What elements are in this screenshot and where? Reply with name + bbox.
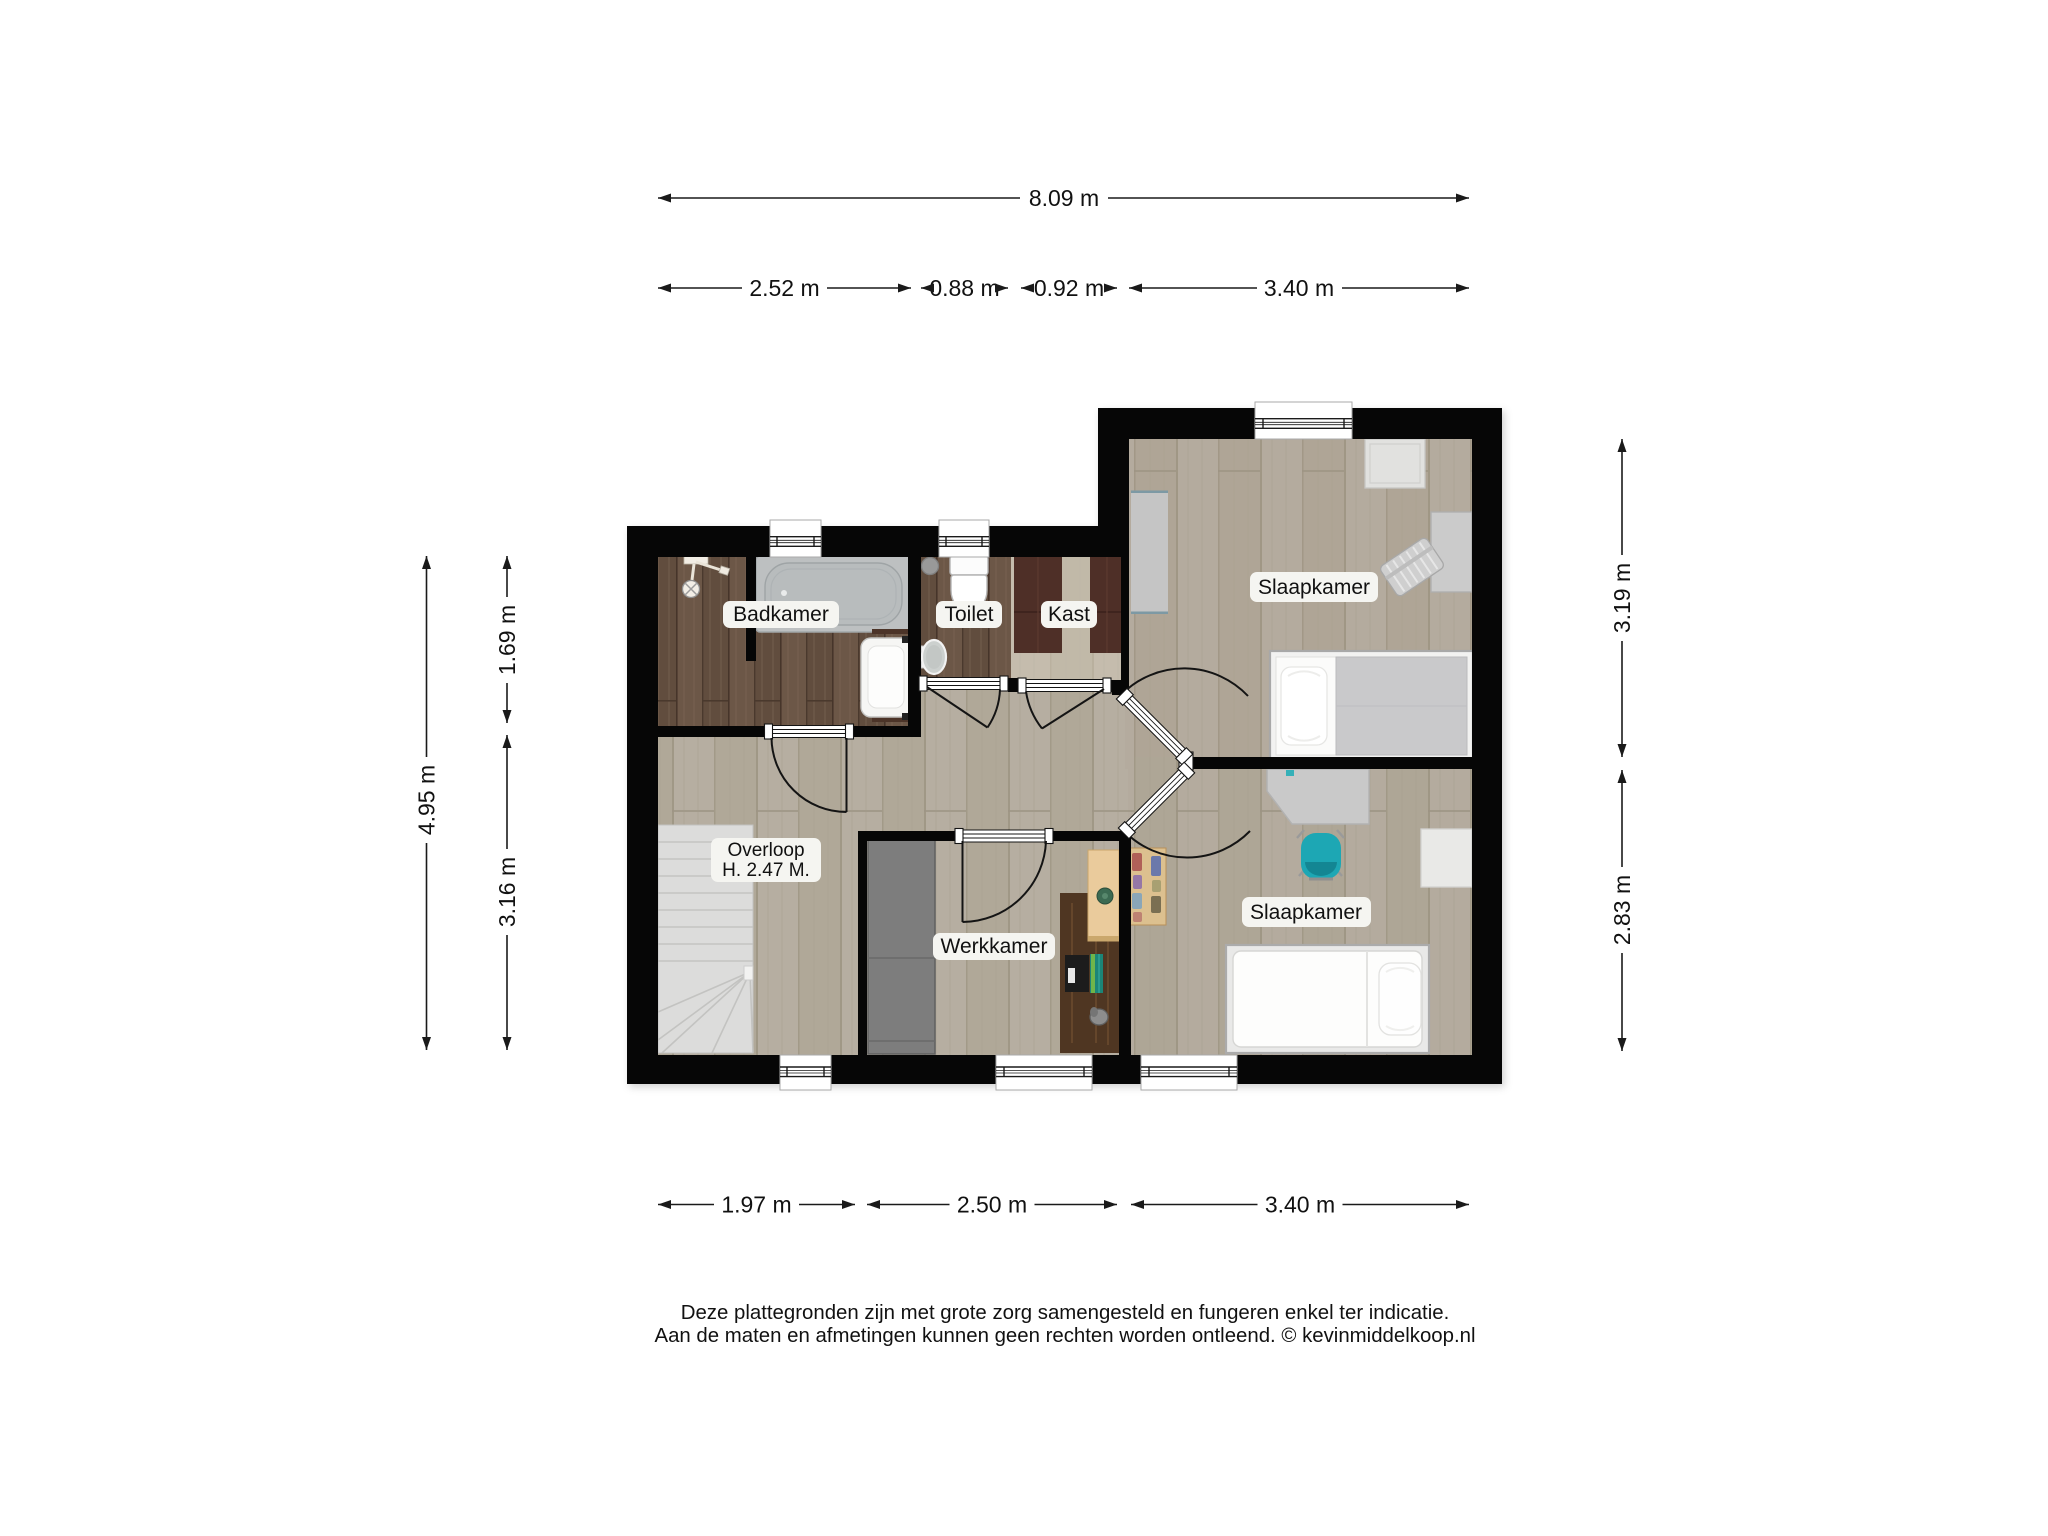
svg-text:1.97 m: 1.97 m: [721, 1192, 791, 1218]
svg-text:2.83 m: 2.83 m: [1609, 875, 1635, 945]
svg-text:0.88 m: 0.88 m: [929, 275, 999, 301]
svg-text:4.95 m: 4.95 m: [414, 765, 440, 835]
svg-text:Werkkamer: Werkkamer: [941, 935, 1048, 958]
svg-text:Badkamer: Badkamer: [733, 603, 829, 626]
svg-text:H. 2.47 M.: H. 2.47 M.: [722, 860, 810, 881]
svg-text:Toilet: Toilet: [944, 603, 993, 626]
svg-text:1.69 m: 1.69 m: [494, 605, 520, 675]
svg-text:2.52 m: 2.52 m: [749, 275, 819, 301]
svg-text:3.19 m: 3.19 m: [1609, 563, 1635, 633]
svg-text:Aan de maten en afmetingen kun: Aan de maten en afmetingen kunnen geen r…: [654, 1325, 1475, 1347]
svg-text:2.50 m: 2.50 m: [957, 1192, 1027, 1218]
svg-text:8.09 m: 8.09 m: [1029, 185, 1099, 211]
svg-text:Overloop: Overloop: [727, 840, 804, 861]
svg-text:Slaapkamer: Slaapkamer: [1258, 576, 1370, 599]
svg-text:Deze plattegronden zijn met gr: Deze plattegronden zijn met grote zorg s…: [681, 1302, 1450, 1324]
svg-text:0.92 m: 0.92 m: [1034, 275, 1104, 301]
svg-text:3.16 m: 3.16 m: [494, 857, 520, 927]
svg-text:3.40 m: 3.40 m: [1264, 275, 1334, 301]
svg-text:Kast: Kast: [1048, 603, 1090, 626]
svg-text:Slaapkamer: Slaapkamer: [1250, 901, 1362, 924]
svg-text:3.40 m: 3.40 m: [1265, 1192, 1335, 1218]
